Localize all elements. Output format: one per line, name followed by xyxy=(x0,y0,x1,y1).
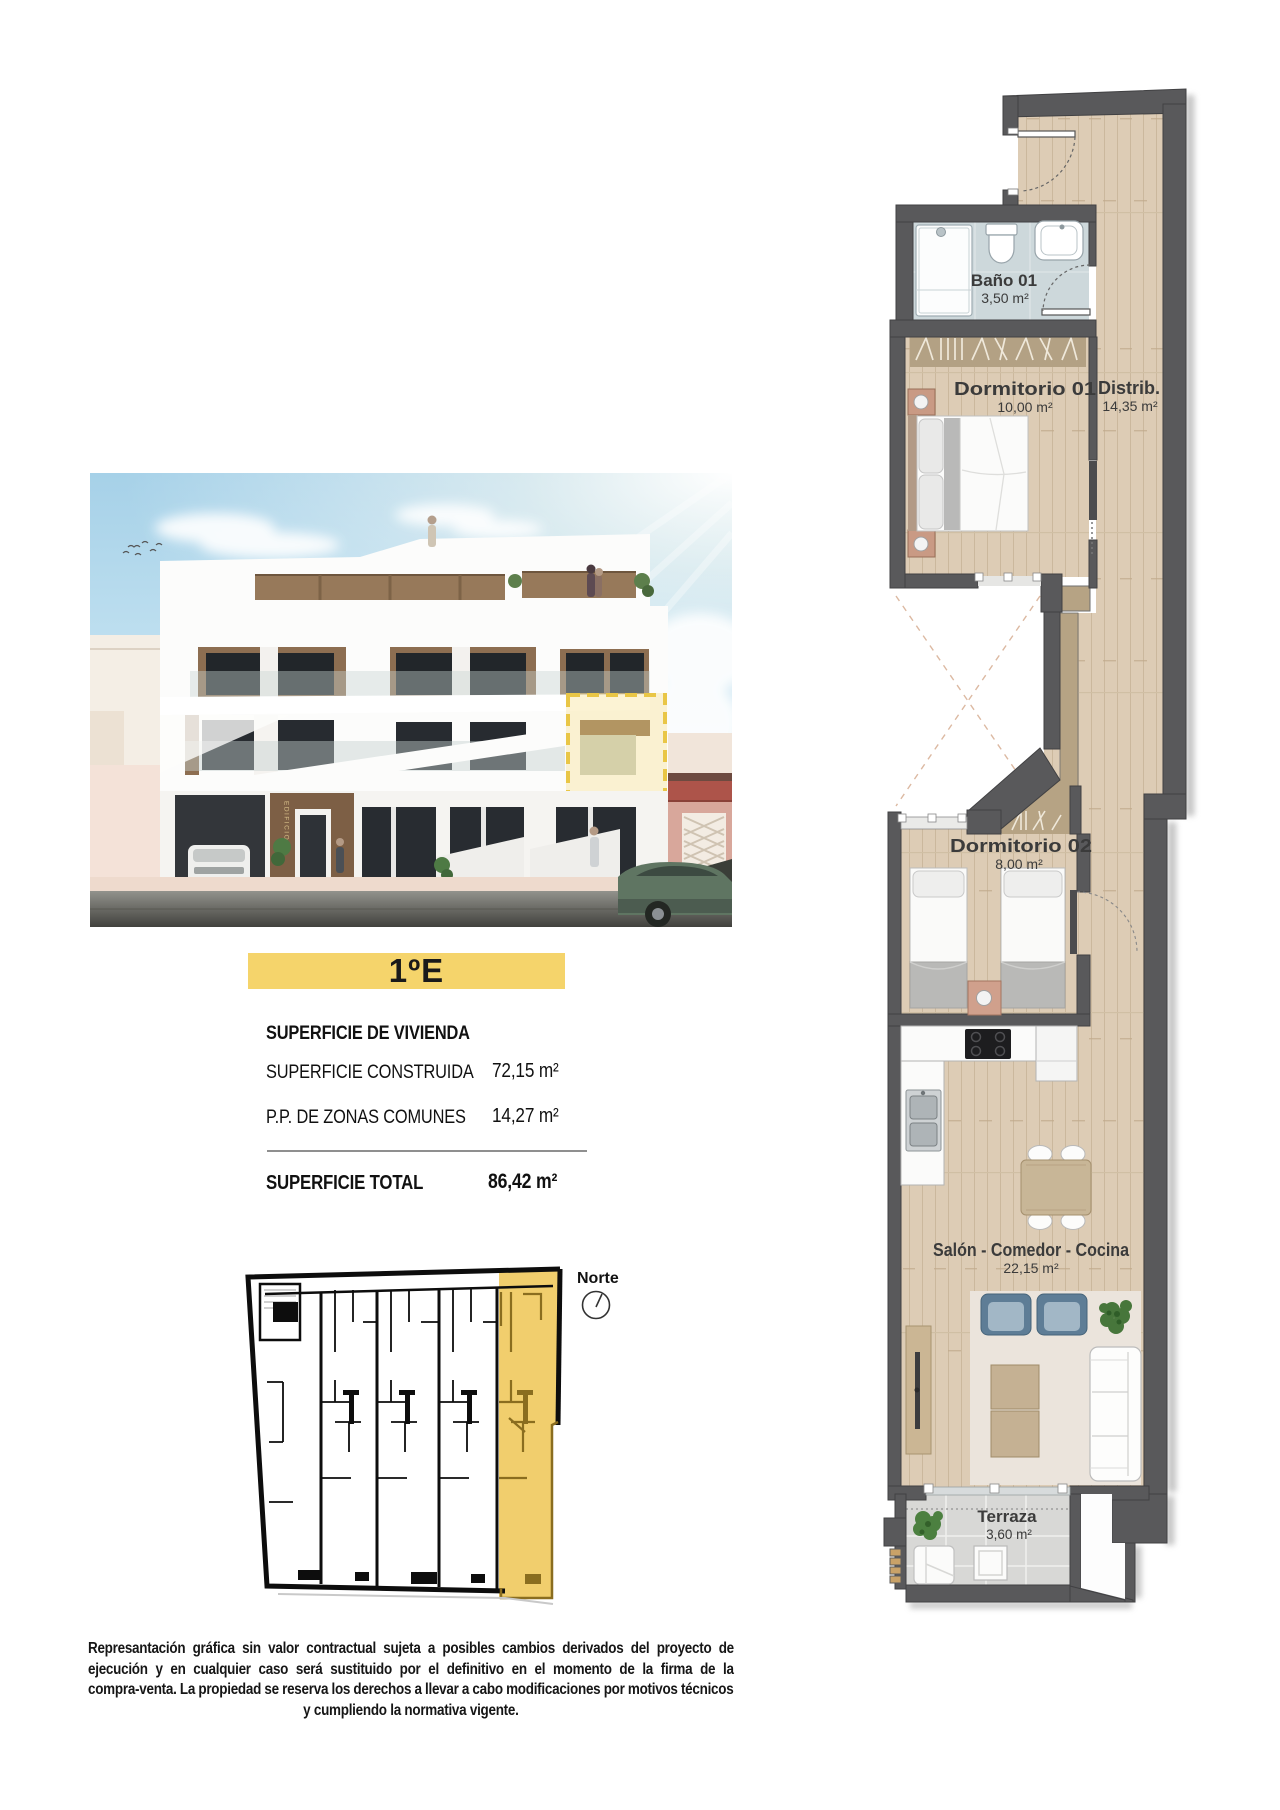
svg-text:Terraza: Terraza xyxy=(977,1507,1037,1526)
svg-text:8,00 m²: 8,00 m² xyxy=(995,856,1043,872)
svg-text:Baño 01: Baño 01 xyxy=(971,271,1037,290)
svg-text:Salón - Comedor - Cocina: Salón - Comedor - Cocina xyxy=(933,1240,1130,1260)
svg-text:EDIFICIO: EDIFICIO xyxy=(283,801,290,841)
svg-text:Norte: Norte xyxy=(577,1270,619,1287)
svg-text:Dormitorio 01: Dormitorio 01 xyxy=(954,379,1096,399)
svg-text:14,35 m²: 14,35 m² xyxy=(1102,398,1158,414)
svg-text:10,00 m²: 10,00 m² xyxy=(997,399,1053,415)
svg-text:22,15 m²: 22,15 m² xyxy=(1003,1260,1059,1276)
svg-text:3,60 m²: 3,60 m² xyxy=(986,1527,1032,1542)
svg-text:Distrib.: Distrib. xyxy=(1098,378,1160,398)
svg-text:Dormitorio 02: Dormitorio 02 xyxy=(950,836,1092,856)
svg-text:3,50 m²: 3,50 m² xyxy=(981,290,1029,306)
